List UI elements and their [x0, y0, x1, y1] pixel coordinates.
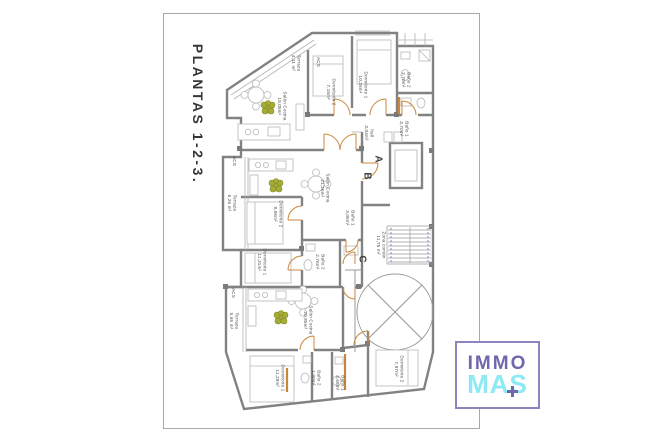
- label-dorm2-a: Dormitorio 2 7,15m²: [325, 79, 336, 106]
- label-bano1-a: Baño 1 3,70m²: [398, 121, 409, 136]
- plant-icon: [269, 179, 283, 193]
- label-bano1-b: Baño 1 3,06m²: [344, 210, 355, 225]
- unit-letter-a: A: [373, 155, 384, 162]
- floorplan-sheet: PLANTAS 1-2-3.: [0, 0, 648, 439]
- label-salon-b: Salón Cocina 21,26m²: [319, 173, 330, 202]
- plus-icon: [507, 386, 518, 397]
- plant-icon: [261, 101, 275, 115]
- label-salon-c: Salón Cocina 20,85m²: [302, 305, 313, 334]
- staircase: [387, 226, 433, 264]
- label-bano1-c: Baño 1 3,68m²: [334, 375, 345, 390]
- label-acs-c: ACS: [230, 288, 236, 298]
- label-acs-b: ACS: [231, 156, 237, 166]
- unit-letter-b: B: [362, 172, 373, 179]
- label-zona-comun: Zona común 11,75 m²: [375, 231, 386, 258]
- unit-letter-c: C: [357, 255, 368, 262]
- label-dorm1-c: Dormitorio 1 11,29m²: [274, 365, 285, 392]
- label-terraza-a: Terraza 4,11 m²: [290, 55, 301, 71]
- label-bano2-a: Baño 2 2,70m²: [400, 72, 411, 87]
- logo-text-mas: MAS: [467, 373, 528, 397]
- immo-mas-logo: IMMO MAS: [455, 341, 540, 409]
- label-dorm2-b: Dormitorio 2 8,06m²: [272, 201, 283, 228]
- label-terraza-c: Terraza 5,65 m²: [228, 313, 239, 330]
- label-acs-a: ACS: [315, 57, 321, 67]
- label-dorm1-b: Dormitorio 1 11,31m²: [256, 249, 267, 276]
- patio-circle: [345, 270, 433, 352]
- label-dorm2-c: Dormitorio 2 7,97m²: [393, 356, 404, 383]
- label-hall-a: hall 3,04m²: [363, 125, 374, 140]
- label-dorm1-a: Dormitorio 1 10,36m²: [357, 72, 368, 99]
- label-terraza-b: Terraza 6,26 m²: [226, 195, 237, 212]
- label-bano2-c: Baño 2 1,90m²: [310, 370, 321, 385]
- label-salon-a: Salón Cocina 19,05m²: [276, 91, 287, 120]
- label-bano2-b: Baño 2 2,76m²: [314, 254, 325, 269]
- floor-plan-drawing: [0, 0, 648, 439]
- plant-icon: [274, 311, 288, 325]
